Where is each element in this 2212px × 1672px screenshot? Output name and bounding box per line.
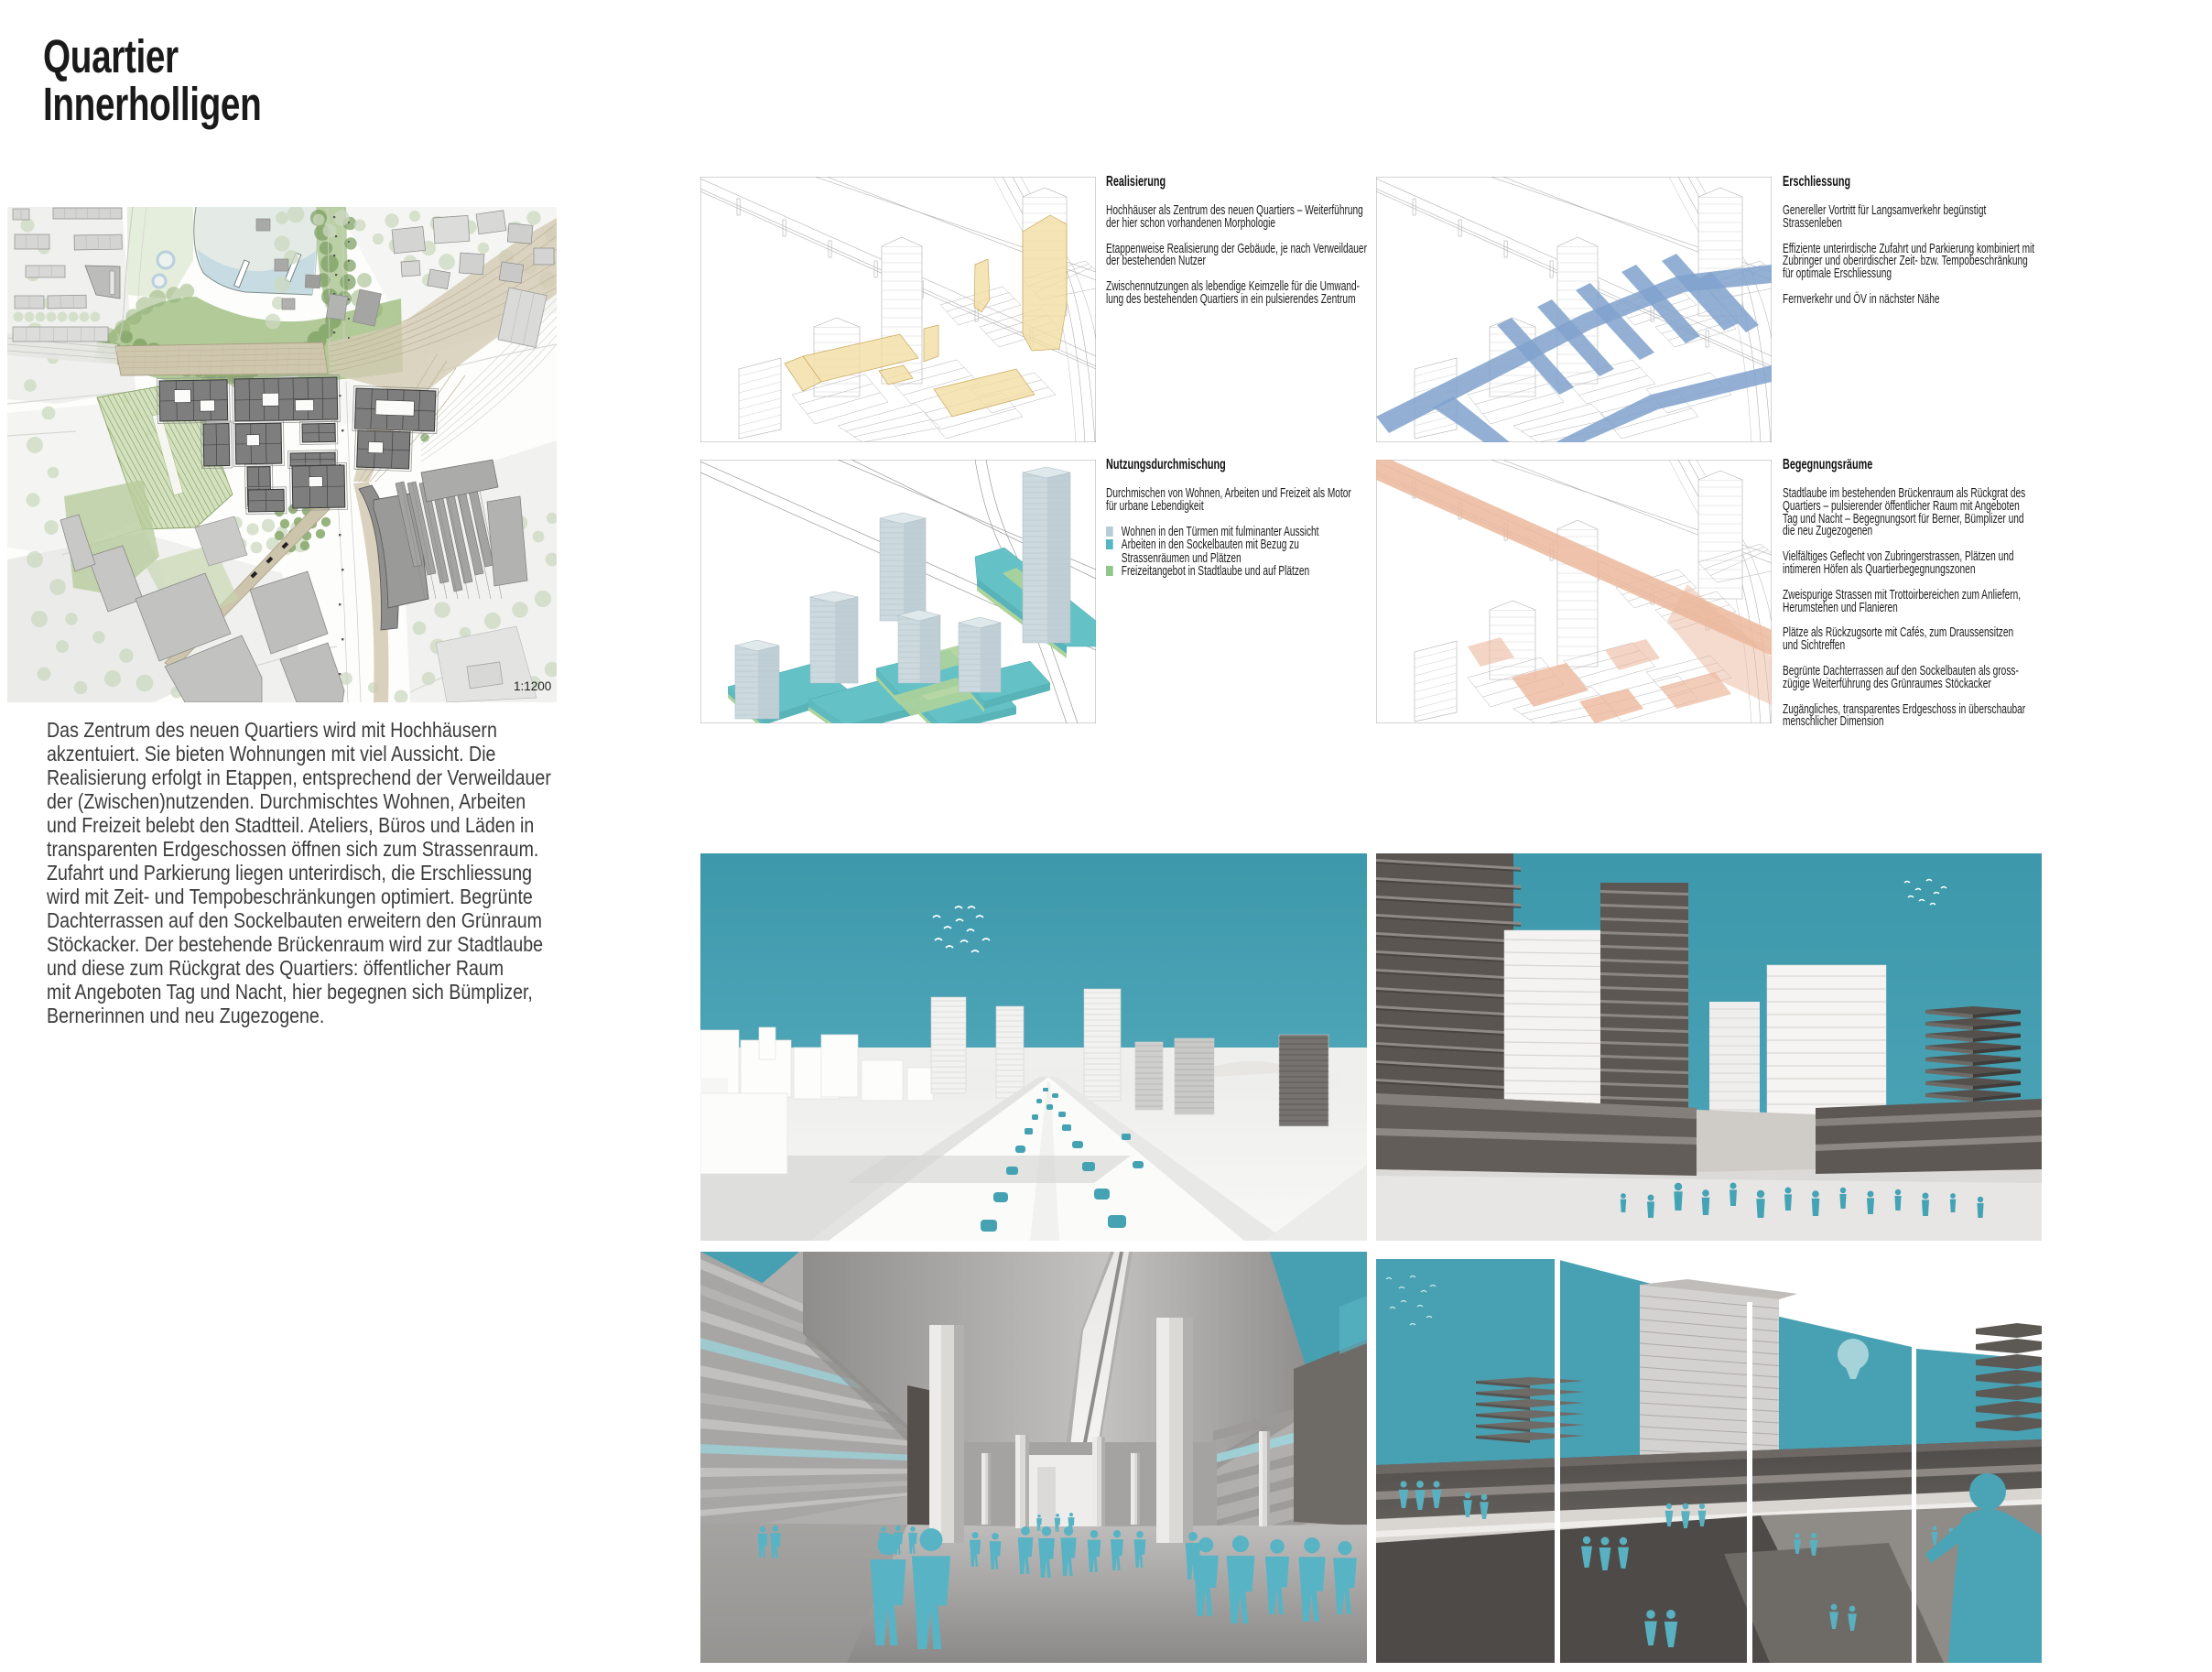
svg-text:1:1200: 1:1200 [514,679,551,693]
